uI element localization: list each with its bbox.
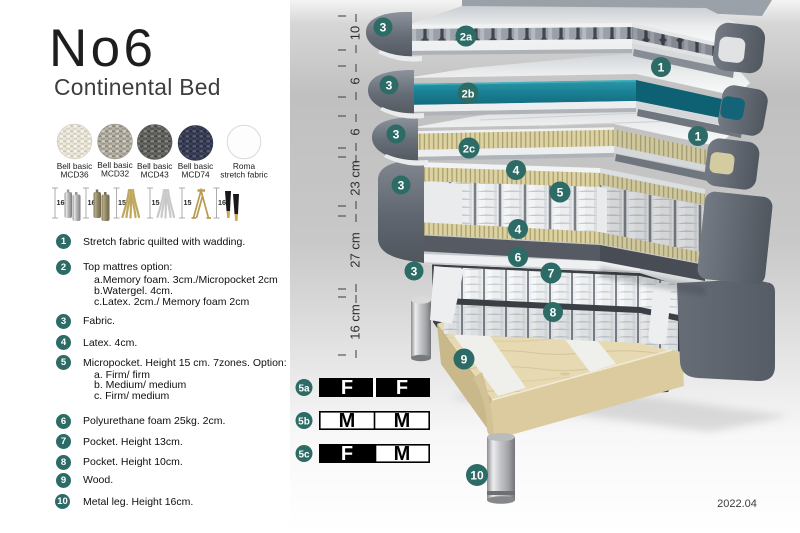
svg-text:M: M bbox=[394, 410, 411, 432]
svg-text:3: 3 bbox=[398, 179, 405, 193]
svg-text:5a: 5a bbox=[298, 384, 310, 395]
svg-text:7: 7 bbox=[548, 267, 555, 281]
svg-text:3: 3 bbox=[393, 128, 400, 142]
svg-text:M: M bbox=[339, 410, 356, 432]
svg-text:9: 9 bbox=[461, 353, 468, 367]
svg-text:10: 10 bbox=[470, 469, 484, 483]
svg-text:5b: 5b bbox=[298, 417, 310, 428]
svg-text:5c: 5c bbox=[298, 450, 310, 461]
svg-text:6: 6 bbox=[347, 77, 362, 84]
svg-text:2b: 2b bbox=[462, 89, 475, 101]
svg-text:F: F bbox=[341, 377, 353, 399]
svg-text:16 cm: 16 cm bbox=[347, 304, 362, 339]
svg-text:2a: 2a bbox=[460, 32, 473, 44]
svg-text:3: 3 bbox=[411, 265, 418, 279]
svg-text:4: 4 bbox=[515, 223, 522, 237]
svg-text:6: 6 bbox=[515, 251, 522, 265]
svg-text:1: 1 bbox=[695, 130, 702, 144]
svg-text:2022.04: 2022.04 bbox=[717, 498, 757, 510]
svg-text:F: F bbox=[341, 443, 353, 465]
svg-text:8: 8 bbox=[550, 306, 557, 320]
svg-text:F: F bbox=[396, 377, 408, 399]
svg-text:3: 3 bbox=[386, 79, 393, 93]
svg-text:3: 3 bbox=[380, 21, 387, 35]
svg-text:5: 5 bbox=[557, 186, 564, 200]
svg-text:2c: 2c bbox=[463, 144, 475, 156]
svg-text:1: 1 bbox=[658, 61, 665, 75]
svg-text:M: M bbox=[394, 443, 411, 465]
svg-text:27 cm: 27 cm bbox=[347, 232, 362, 267]
svg-text:6: 6 bbox=[347, 128, 362, 135]
svg-text:4: 4 bbox=[513, 164, 520, 178]
svg-text:23 cm: 23 cm bbox=[347, 160, 362, 195]
svg-text:10: 10 bbox=[347, 26, 362, 40]
